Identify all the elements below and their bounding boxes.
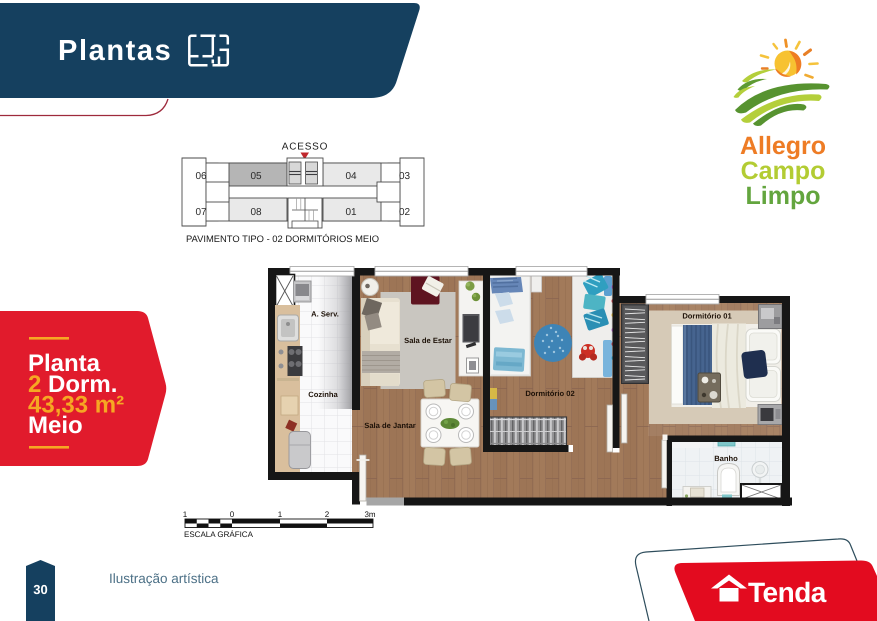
svg-text:30: 30 — [33, 582, 47, 597]
svg-text:Cozinha: Cozinha — [308, 390, 338, 399]
svg-text:06: 06 — [195, 171, 207, 182]
svg-text:ESCALA GRÁFICA: ESCALA GRÁFICA — [184, 530, 254, 539]
svg-text:Meio: Meio — [28, 412, 83, 439]
svg-text:03: 03 — [399, 171, 411, 182]
svg-text:Campo: Campo — [741, 157, 826, 185]
svg-text:A. Serv.: A. Serv. — [311, 310, 339, 319]
svg-text:Allegro: Allegro — [740, 132, 826, 160]
svg-text:07: 07 — [195, 207, 207, 218]
svg-text:Limpo: Limpo — [746, 182, 821, 210]
svg-text:Banho: Banho — [714, 454, 738, 463]
svg-text:Dormitório 01: Dormitório 01 — [682, 312, 732, 321]
svg-text:Sala de Jantar: Sala de Jantar — [364, 421, 416, 430]
svg-text:02: 02 — [399, 207, 411, 218]
svg-text:Dormitório 02: Dormitório 02 — [525, 389, 574, 398]
svg-text:04: 04 — [345, 171, 357, 182]
svg-text:0: 0 — [230, 510, 235, 519]
svg-text:3m: 3m — [364, 510, 375, 519]
svg-text:2: 2 — [325, 510, 330, 519]
svg-text:Ilustração artística: Ilustração artística — [109, 571, 219, 586]
svg-text:Plantas: Plantas — [58, 35, 172, 67]
svg-text:01: 01 — [345, 207, 357, 218]
svg-text:1: 1 — [278, 510, 283, 519]
svg-text:Sala de Estar: Sala de Estar — [404, 336, 452, 345]
svg-text:08: 08 — [250, 207, 262, 218]
svg-text:1: 1 — [183, 510, 188, 519]
svg-text:ACESSO: ACESSO — [282, 142, 328, 153]
svg-text:05: 05 — [250, 171, 262, 182]
svg-text:PAVIMENTO TIPO - 02 DORMITÓRIO: PAVIMENTO TIPO - 02 DORMITÓRIOS MEIO — [186, 233, 379, 244]
svg-text:Tenda: Tenda — [748, 577, 827, 608]
